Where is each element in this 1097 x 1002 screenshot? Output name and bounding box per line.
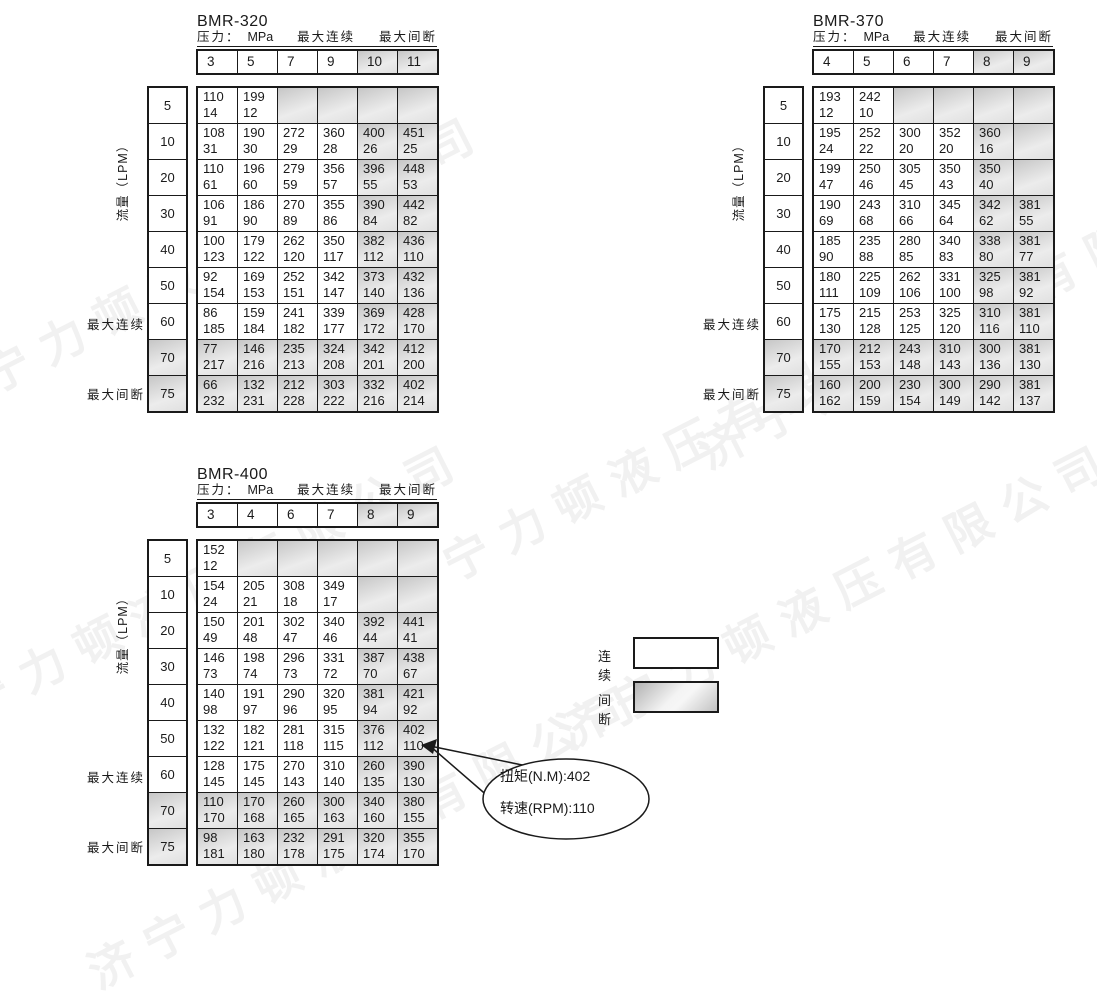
torque-value: 382 xyxy=(363,233,397,249)
pressure-unit-label: MPa xyxy=(248,484,274,499)
torque-value: 290 xyxy=(283,686,317,702)
cell-10lpm-8mpa xyxy=(358,577,398,613)
pressure-unit-label: MPa xyxy=(864,31,890,46)
torque-value: 360 xyxy=(323,125,357,141)
cell-10lpm-11mpa: 45125 xyxy=(398,124,437,160)
torque-value: 190 xyxy=(819,197,853,213)
speed-value: 200 xyxy=(403,357,437,373)
torque-value: 291 xyxy=(323,830,357,846)
speed-value: 83 xyxy=(939,249,973,265)
speed-value: 89 xyxy=(283,213,317,229)
cell-30lpm-3mpa: 14673 xyxy=(198,649,238,685)
speed-value: 24 xyxy=(203,594,237,610)
cell-60lpm-6mpa: 253125 xyxy=(894,304,934,340)
torque-value: 252 xyxy=(283,269,317,285)
speed-value: 162 xyxy=(819,393,853,409)
cell-30lpm-9mpa: 38155 xyxy=(1014,196,1053,232)
cell-75lpm-7mpa: 291175 xyxy=(318,829,358,864)
cell-5lpm-9mpa xyxy=(318,88,358,124)
cell-30lpm-8mpa: 38770 xyxy=(358,649,398,685)
cell-40lpm-7mpa: 34083 xyxy=(934,232,974,268)
cell-20lpm-3mpa: 11061 xyxy=(198,160,238,196)
cell-40lpm-9mpa: 42192 xyxy=(398,685,437,721)
torque-value: 110 xyxy=(203,161,237,177)
torque-value: 260 xyxy=(283,794,317,810)
cell-70lpm-11mpa: 412200 xyxy=(398,340,437,376)
table-row: 175130215128253125325120310116381110 xyxy=(814,304,1053,340)
cell-75lpm-4mpa: 163180 xyxy=(238,829,278,864)
torque-value: 340 xyxy=(323,614,357,630)
cell-60lpm-10mpa: 369172 xyxy=(358,304,398,340)
cell-75lpm-9mpa: 303222 xyxy=(318,376,358,411)
torque-value: 320 xyxy=(363,830,397,846)
cell-30lpm-8mpa: 34262 xyxy=(974,196,1014,232)
cell-20lpm-8mpa: 39244 xyxy=(358,613,398,649)
torque-value: 280 xyxy=(899,233,933,249)
cell-70lpm-9mpa: 324208 xyxy=(318,340,358,376)
cell-50lpm-3mpa: 132122 xyxy=(198,721,238,757)
table-row: 77217146216235213324208342201412200 xyxy=(198,340,437,376)
cell-60lpm-9mpa: 381110 xyxy=(1014,304,1053,340)
speed-value: 165 xyxy=(283,810,317,826)
speed-value: 64 xyxy=(939,213,973,229)
flow-row-30lpm: 30 xyxy=(149,196,186,232)
max-intermittent-row-label: 最大间断 xyxy=(703,384,761,403)
cell-10lpm-7mpa: 35220 xyxy=(934,124,974,160)
torque-value: 369 xyxy=(363,305,397,321)
speed-value: 29 xyxy=(283,141,317,157)
cell-75lpm-8mpa: 320174 xyxy=(358,829,398,864)
torque-value: 448 xyxy=(403,161,437,177)
cell-30lpm-5mpa: 18690 xyxy=(238,196,278,232)
speed-value: 88 xyxy=(859,249,893,265)
speed-value: 110 xyxy=(1019,321,1053,337)
pressure-unit-group: 压力：MPa xyxy=(197,31,273,46)
torque-value: 154 xyxy=(203,578,237,594)
cell-10lpm-6mpa: 30818 xyxy=(278,577,318,613)
cell-40lpm-7mpa: 32095 xyxy=(318,685,358,721)
cell-40lpm-4mpa: 19197 xyxy=(238,685,278,721)
speed-value: 111 xyxy=(819,285,853,301)
table-row: 1994725046305453504335040 xyxy=(814,160,1053,196)
torque-value: 310 xyxy=(979,305,1013,321)
cell-20lpm-5mpa: 19660 xyxy=(238,160,278,196)
speed-value: 22 xyxy=(859,141,893,157)
cell-5lpm-7mpa xyxy=(278,88,318,124)
legend-continuous-swatch xyxy=(633,637,719,669)
pressure-col-9mpa: 9 xyxy=(1014,51,1053,73)
cell-40lpm-5mpa: 23588 xyxy=(854,232,894,268)
torque-value: 110 xyxy=(203,794,237,810)
pressure-col-8mpa: 8 xyxy=(974,51,1014,73)
cell-30lpm-5mpa: 24368 xyxy=(854,196,894,232)
cell-70lpm-7mpa: 300163 xyxy=(318,793,358,829)
cell-20lpm-9mpa: 35657 xyxy=(318,160,358,196)
torque-value: 200 xyxy=(859,377,893,393)
flow-row-70lpm: 70 xyxy=(149,340,186,376)
torque-value: 325 xyxy=(979,269,1013,285)
cell-40lpm-3mpa: 14098 xyxy=(198,685,238,721)
torque-value: 262 xyxy=(899,269,933,285)
cell-5lpm-3mpa: 15212 xyxy=(198,541,238,577)
cell-50lpm-5mpa: 169153 xyxy=(238,268,278,304)
flow-row-70lpm: 70 xyxy=(149,793,186,829)
pressure-columns-row: 35791011 xyxy=(196,49,439,75)
cell-70lpm-3mpa: 110170 xyxy=(198,793,238,829)
cell-20lpm-7mpa: 27959 xyxy=(278,160,318,196)
torque-value: 308 xyxy=(283,578,317,594)
torque-value: 342 xyxy=(363,341,397,357)
max-continuous-header: 最大连续 xyxy=(297,484,355,499)
torque-value: 242 xyxy=(859,89,893,105)
flow-row-50lpm: 50 xyxy=(149,721,186,757)
torque-value: 392 xyxy=(363,614,397,630)
cell-60lpm-11mpa: 428170 xyxy=(398,304,437,340)
cell-5lpm-7mpa xyxy=(318,541,358,577)
cell-60lpm-7mpa: 325120 xyxy=(934,304,974,340)
torque-value: 77 xyxy=(203,341,237,357)
cell-75lpm-6mpa: 232178 xyxy=(278,829,318,864)
torque-value: 100 xyxy=(203,233,237,249)
cell-5lpm-9mpa xyxy=(1014,88,1053,124)
flow-row-10lpm: 10 xyxy=(149,124,186,160)
flow-row-60lpm: 60 xyxy=(765,304,802,340)
torque-value: 381 xyxy=(1019,377,1053,393)
cell-50lpm-11mpa: 432136 xyxy=(398,268,437,304)
torque-value: 451 xyxy=(403,125,437,141)
speed-value: 122 xyxy=(203,738,237,754)
table-title: BMR-370 xyxy=(813,14,884,30)
torque-value: 195 xyxy=(819,125,853,141)
torque-value: 260 xyxy=(363,758,397,774)
torque-value: 310 xyxy=(899,197,933,213)
cell-75lpm-9mpa: 381137 xyxy=(1014,376,1053,411)
cell-30lpm-4mpa: 19874 xyxy=(238,649,278,685)
speed-value: 96 xyxy=(283,702,317,718)
speed-value: 55 xyxy=(1019,213,1053,229)
torque-value: 152 xyxy=(203,542,237,558)
cell-60lpm-6mpa: 270143 xyxy=(278,757,318,793)
cell-5lpm-6mpa xyxy=(278,541,318,577)
cell-60lpm-5mpa: 159184 xyxy=(238,304,278,340)
cell-30lpm-6mpa: 29673 xyxy=(278,649,318,685)
speed-value: 47 xyxy=(283,630,317,646)
cell-10lpm-7mpa: 34917 xyxy=(318,577,358,613)
torque-value: 225 xyxy=(859,269,893,285)
speed-value: 48 xyxy=(243,630,277,646)
cell-20lpm-6mpa: 30247 xyxy=(278,613,318,649)
cell-70lpm-3mpa: 77217 xyxy=(198,340,238,376)
cell-5lpm-5mpa: 24210 xyxy=(854,88,894,124)
max-intermittent-row-label: 最大间断 xyxy=(87,837,145,856)
cell-70lpm-8mpa: 340160 xyxy=(358,793,398,829)
torque-value: 146 xyxy=(243,341,277,357)
cell-40lpm-3mpa: 100123 xyxy=(198,232,238,268)
speed-value: 45 xyxy=(899,177,933,193)
torque-value: 232 xyxy=(283,830,317,846)
table-title: BMR-320 xyxy=(197,14,268,30)
cell-50lpm-9mpa: 342147 xyxy=(318,268,358,304)
cell-30lpm-7mpa: 33172 xyxy=(318,649,358,685)
speed-value: 98 xyxy=(979,285,1013,301)
speed-value: 98 xyxy=(203,702,237,718)
flow-values-column: 51020304050607075 xyxy=(147,539,188,866)
speed-value: 154 xyxy=(899,393,933,409)
speed-value: 73 xyxy=(283,666,317,682)
torque-value: 356 xyxy=(323,161,357,177)
speed-value: 44 xyxy=(363,630,397,646)
torque-value: 270 xyxy=(283,758,317,774)
speed-value: 97 xyxy=(243,702,277,718)
cell-5lpm-4mpa: 19312 xyxy=(814,88,854,124)
speed-value: 46 xyxy=(859,177,893,193)
torque-value: 252 xyxy=(859,125,893,141)
cell-20lpm-5mpa: 25046 xyxy=(854,160,894,196)
cell-30lpm-3mpa: 10691 xyxy=(198,196,238,232)
cell-5lpm-10mpa xyxy=(358,88,398,124)
speed-value: 136 xyxy=(403,285,437,301)
speed-value: 182 xyxy=(283,321,317,337)
torque-value: 140 xyxy=(203,686,237,702)
cell-40lpm-5mpa: 179122 xyxy=(238,232,278,268)
table-row: 140981919729096320953819442192 xyxy=(198,685,437,721)
torque-value: 198 xyxy=(243,650,277,666)
cell-10lpm-8mpa: 36016 xyxy=(974,124,1014,160)
torque-value: 270 xyxy=(283,197,317,213)
speed-value: 149 xyxy=(939,393,973,409)
cell-75lpm-7mpa: 300149 xyxy=(934,376,974,411)
flow-row-10lpm: 10 xyxy=(149,577,186,613)
speed-value: 80 xyxy=(979,249,1013,265)
torque-value: 331 xyxy=(323,650,357,666)
speed-value: 95 xyxy=(323,702,357,718)
speed-value: 91 xyxy=(203,213,237,229)
torque-value: 212 xyxy=(859,341,893,357)
speed-value: 116 xyxy=(979,321,1013,337)
cell-75lpm-10mpa: 332216 xyxy=(358,376,398,411)
cell-10lpm-3mpa: 10831 xyxy=(198,124,238,160)
torque-value: 196 xyxy=(243,161,277,177)
cell-60lpm-7mpa: 310140 xyxy=(318,757,358,793)
torque-value: 253 xyxy=(899,305,933,321)
pressure-col-9mpa: 9 xyxy=(318,51,358,73)
speed-value: 77 xyxy=(1019,249,1053,265)
speed-value: 160 xyxy=(363,810,397,826)
pressure-col-7mpa: 7 xyxy=(278,51,318,73)
torque-value: 199 xyxy=(243,89,277,105)
max-continuous-row-label: 最大连续 xyxy=(703,314,761,333)
flow-values-column: 51020304050607075 xyxy=(763,86,804,413)
cell-20lpm-7mpa: 35043 xyxy=(934,160,974,196)
torque-value: 442 xyxy=(403,197,437,213)
flow-row-75lpm: 75 xyxy=(149,376,186,411)
table-row: 15424205213081834917 xyxy=(198,577,437,613)
speed-value: 145 xyxy=(203,774,237,790)
torque-value: 106 xyxy=(203,197,237,213)
pressure-unit-group: 压力：MPa xyxy=(813,31,889,46)
pressure-col-9mpa: 9 xyxy=(398,504,437,526)
torque-value: 180 xyxy=(819,269,853,285)
torque-value: 428 xyxy=(403,305,437,321)
cell-20lpm-4mpa: 20148 xyxy=(238,613,278,649)
speed-value: 228 xyxy=(283,393,317,409)
flow-row-40lpm: 40 xyxy=(149,232,186,268)
torque-value: 191 xyxy=(243,686,277,702)
cell-5lpm-11mpa xyxy=(398,88,437,124)
speed-value: 46 xyxy=(323,630,357,646)
speed-value: 55 xyxy=(363,177,397,193)
torque-value: 169 xyxy=(243,269,277,285)
speed-value: 53 xyxy=(403,177,437,193)
cell-5lpm-7mpa xyxy=(934,88,974,124)
cell-75lpm-5mpa: 200159 xyxy=(854,376,894,411)
speed-value: 153 xyxy=(243,285,277,301)
table-row: 110170170168260165300163340160380155 xyxy=(198,793,437,829)
pressure-col-7mpa: 7 xyxy=(318,504,358,526)
speed-value: 174 xyxy=(363,846,397,862)
speed-value: 24 xyxy=(819,141,853,157)
speed-value: 142 xyxy=(979,393,1013,409)
speed-value: 121 xyxy=(243,738,277,754)
torque-value: 396 xyxy=(363,161,397,177)
pressure-header-row: 压力：MPa最大连续最大间断 xyxy=(197,484,437,500)
torque-value: 190 xyxy=(243,125,277,141)
cell-5lpm-8mpa xyxy=(974,88,1014,124)
pressure-col-4mpa: 4 xyxy=(814,51,854,73)
torque-value: 303 xyxy=(323,377,357,393)
torque-value: 325 xyxy=(939,305,973,321)
torque-value: 381 xyxy=(1019,233,1053,249)
cell-20lpm-11mpa: 44853 xyxy=(398,160,437,196)
speed-value: 122 xyxy=(243,249,277,265)
flow-row-30lpm: 30 xyxy=(149,649,186,685)
speed-value: 70 xyxy=(363,666,397,682)
table-row: 190692436831066345643426238155 xyxy=(814,196,1053,232)
cell-60lpm-3mpa: 128145 xyxy=(198,757,238,793)
cell-5lpm-6mpa xyxy=(894,88,934,124)
speed-value: 125 xyxy=(899,321,933,337)
cell-5lpm-9mpa xyxy=(398,541,437,577)
speed-value: 86 xyxy=(323,213,357,229)
cell-20lpm-9mpa xyxy=(1014,160,1053,196)
legend-continuous-label: 连续 xyxy=(598,646,614,684)
torque-value: 402 xyxy=(403,377,437,393)
speed-value: 85 xyxy=(899,249,933,265)
pressure-col-10mpa: 10 xyxy=(358,51,398,73)
torque-value: 193 xyxy=(819,89,853,105)
speed-value: 178 xyxy=(283,846,317,862)
torque-value: 340 xyxy=(939,233,973,249)
cell-10lpm-4mpa: 20521 xyxy=(238,577,278,613)
cell-75lpm-3mpa: 98181 xyxy=(198,829,238,864)
flow-row-20lpm: 20 xyxy=(765,160,802,196)
torque-value: 110 xyxy=(203,89,237,105)
speed-value: 155 xyxy=(819,357,853,373)
cell-10lpm-5mpa: 19030 xyxy=(238,124,278,160)
flow-row-20lpm: 20 xyxy=(149,160,186,196)
speed-value: 10 xyxy=(859,105,893,121)
speed-value: 66 xyxy=(899,213,933,229)
cell-30lpm-7mpa: 34564 xyxy=(934,196,974,232)
cell-70lpm-4mpa: 170155 xyxy=(814,340,854,376)
flow-row-50lpm: 50 xyxy=(765,268,802,304)
cell-50lpm-7mpa: 331100 xyxy=(934,268,974,304)
torque-value: 98 xyxy=(203,830,237,846)
cell-10lpm-7mpa: 27229 xyxy=(278,124,318,160)
torque-value: 300 xyxy=(323,794,357,810)
cell-40lpm-11mpa: 436110 xyxy=(398,232,437,268)
cell-50lpm-7mpa: 315115 xyxy=(318,721,358,757)
flow-axis-label: 流量（LPM） xyxy=(112,563,128,703)
cell-70lpm-6mpa: 243148 xyxy=(894,340,934,376)
speed-value: 120 xyxy=(283,249,317,265)
cell-20lpm-3mpa: 15049 xyxy=(198,613,238,649)
torque-value: 345 xyxy=(939,197,973,213)
speed-value: 59 xyxy=(283,177,317,193)
cell-5lpm-5mpa: 19912 xyxy=(238,88,278,124)
cell-70lpm-5mpa: 212153 xyxy=(854,340,894,376)
torque-value: 376 xyxy=(363,722,397,738)
cell-60lpm-3mpa: 86185 xyxy=(198,304,238,340)
cell-30lpm-9mpa: 43867 xyxy=(398,649,437,685)
table-row: 1931224210 xyxy=(814,88,1053,124)
cell-10lpm-5mpa: 25222 xyxy=(854,124,894,160)
pressure-col-7mpa: 7 xyxy=(934,51,974,73)
speed-value: 181 xyxy=(203,846,237,862)
speed-value: 216 xyxy=(243,357,277,373)
speed-value: 120 xyxy=(939,321,973,337)
callout-bubble-shape xyxy=(418,736,668,856)
table-row: 108311903027229360284002645125 xyxy=(198,124,437,160)
speed-value: 57 xyxy=(323,177,357,193)
data-grid: 1101419912108311903027229360284002645125… xyxy=(196,86,439,413)
cell-10lpm-4mpa: 19524 xyxy=(814,124,854,160)
torque-value: 281 xyxy=(283,722,317,738)
torque-value: 349 xyxy=(323,578,357,594)
torque-value: 146 xyxy=(203,650,237,666)
torque-value: 381 xyxy=(1019,269,1053,285)
table-row: 185902358828085340833388038177 xyxy=(814,232,1053,268)
cell-30lpm-7mpa: 27089 xyxy=(278,196,318,232)
torque-value: 350 xyxy=(939,161,973,177)
torque-value: 243 xyxy=(899,341,933,357)
pressure-unit-label: MPa xyxy=(248,31,274,46)
speed-value: 151 xyxy=(283,285,317,301)
flow-row-60lpm: 60 xyxy=(149,304,186,340)
pressure-col-6mpa: 6 xyxy=(278,504,318,526)
speed-value: 73 xyxy=(203,666,237,682)
speed-value: 137 xyxy=(1019,393,1053,409)
speed-value: 40 xyxy=(979,177,1013,193)
pressure-unit-group: 压力：MPa xyxy=(197,484,273,499)
speed-value: 31 xyxy=(203,141,237,157)
pressure-header-row: 压力：MPa最大连续最大间断 xyxy=(197,31,437,47)
cell-40lpm-6mpa: 28085 xyxy=(894,232,934,268)
speed-value: 84 xyxy=(363,213,397,229)
speed-value: 184 xyxy=(243,321,277,337)
cell-40lpm-6mpa: 29096 xyxy=(278,685,318,721)
cell-50lpm-6mpa: 262106 xyxy=(894,268,934,304)
speed-value: 112 xyxy=(363,738,397,754)
speed-value: 17 xyxy=(323,594,357,610)
table-row: 128145175145270143310140260135390130 xyxy=(198,757,437,793)
flow-axis-label: 流量（LPM） xyxy=(728,110,744,250)
torque-value: 272 xyxy=(283,125,317,141)
flow-row-20lpm: 20 xyxy=(149,613,186,649)
speed-value: 110 xyxy=(403,249,437,265)
flow-row-70lpm: 70 xyxy=(765,340,802,376)
torque-value: 160 xyxy=(819,377,853,393)
